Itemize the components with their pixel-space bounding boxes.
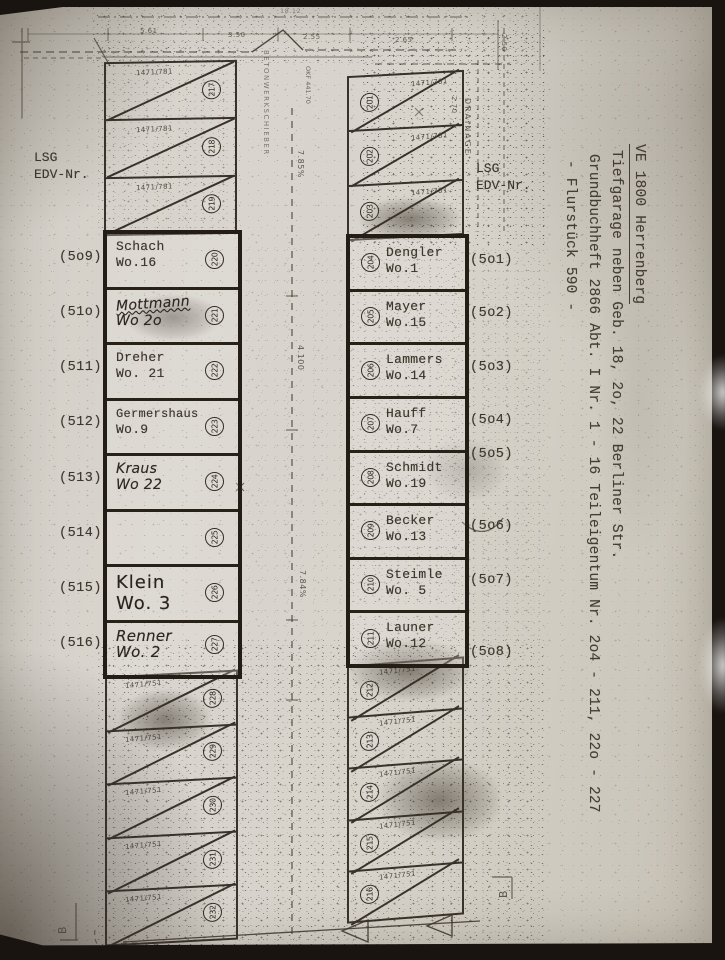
- parcel-number: 1471/751: [125, 786, 162, 797]
- stall-number-badge: 230: [203, 795, 222, 815]
- owner-name: Germershaus: [116, 406, 199, 422]
- stall-number: 230: [208, 798, 217, 812]
- stall-number: 219: [207, 197, 216, 211]
- note-line-2: Tiefgarage neben Geb. 18, 2o, 22 Berline…: [604, 138, 627, 818]
- owner-name: Lammers: [386, 352, 443, 368]
- photo-edge-bottom: [0, 943, 725, 960]
- owner-name: Steimle: [386, 567, 443, 583]
- parking-stall: 1471/781 203: [349, 179, 462, 239]
- stall-number-badge: 203: [360, 201, 379, 221]
- apartment-ref: Wo. 21: [116, 366, 165, 382]
- apartment-ref: Wo.15: [386, 315, 427, 331]
- stall-number-badge: 225: [205, 528, 224, 547]
- stall-number: 212: [365, 683, 374, 697]
- apartment-ref: Wo. 5: [386, 583, 443, 599]
- apartment-ref: Wo.1: [386, 261, 443, 277]
- parking-stall: 1471/751 228: [107, 672, 236, 730]
- dim-350: 3.50: [228, 31, 246, 39]
- drainage-label: DRAINAGE: [463, 98, 472, 190]
- stall-number-badge: 227: [205, 635, 224, 654]
- stall-number-badge: 206: [361, 361, 380, 380]
- owner-name: Hauff: [386, 406, 427, 422]
- stall-number: 210: [366, 578, 375, 592]
- edv-number: (514): [59, 526, 102, 541]
- stall-number: 229: [208, 745, 217, 759]
- parking-stall: 1471/781 218: [106, 117, 235, 177]
- stall-number: 208: [366, 470, 375, 484]
- apartment-ref: Wo.19: [386, 476, 443, 492]
- parcel-number: 1471/751: [125, 679, 162, 690]
- note-line-3: Grundbuchheft 2866 Abt. I Nr. 1 - 16 Tei…: [581, 138, 604, 818]
- ramp-material-label: BETONWERKSCHIEBER: [262, 50, 270, 195]
- edv-number: (512): [59, 415, 102, 430]
- apartment-ref: Wo.13: [386, 529, 435, 545]
- header-edv: EDV-Nr.: [34, 167, 89, 182]
- apartment-ref: Wo.14: [386, 368, 443, 384]
- edv-number: (5o1): [470, 253, 513, 268]
- section-marker-b-right: B: [497, 891, 511, 898]
- stall-number: 214: [365, 785, 374, 799]
- parking-stall: 1471/781 202: [349, 124, 462, 184]
- owner-name: Kraus: [116, 461, 162, 477]
- parcel-number: 1471/751: [379, 767, 416, 779]
- parking-stall: 211 LaunerWo.12: [350, 610, 465, 664]
- stall-number: 211: [366, 631, 375, 645]
- owner-name: Mayer: [386, 299, 427, 315]
- stall-number-badge: 219: [202, 194, 221, 213]
- edv-column-right: (5o1) (5o2) (5o3) (5o4) (5o5) (5o6) (5o7…: [470, 234, 534, 660]
- left-main-stalls: SchachWo.16 220 MottmannWo 2o 221 Dreher…: [103, 230, 242, 679]
- owner-name: Becker: [386, 513, 435, 529]
- stall-number-badge: 215: [360, 833, 379, 853]
- owner-name: Mottmann: [116, 293, 191, 314]
- stall-number: 202: [365, 150, 374, 164]
- stall-number-badge: 231: [203, 849, 222, 869]
- parcel-number: 1471/751: [379, 716, 416, 728]
- parking-stall: MottmannWo 2o 221: [107, 287, 238, 343]
- plan-title: VE 1800 Herrenberg: [629, 144, 647, 304]
- title-block-note: VE 1800 Herrenberg Tiefgarage neben Geb.…: [558, 138, 650, 818]
- apartment-ref: Wo. 2: [116, 644, 172, 660]
- parking-stall: 1471/751 231: [107, 830, 236, 890]
- owner-name: Dreher: [116, 350, 165, 366]
- owner-name: Schach: [116, 239, 165, 255]
- stall-number-badge: 229: [203, 742, 222, 762]
- parcel-number: 1471/751: [125, 840, 162, 851]
- parcel-number: 1471/751: [379, 869, 416, 881]
- stall-number: 205: [366, 310, 375, 324]
- edv-number: (5o8): [470, 645, 513, 660]
- stall-number: 213: [365, 734, 374, 748]
- dim-255: 2.55: [303, 33, 321, 41]
- parking-stall: 208 SchmidtWo.19: [350, 450, 465, 504]
- parking-stall: 1471/751 214: [349, 759, 462, 819]
- stall-number: 227: [210, 637, 219, 651]
- stall-number: 232: [208, 905, 217, 919]
- okf-value: 441.70: [304, 81, 312, 104]
- parking-stall: 209 BeckerWo.13: [350, 503, 465, 557]
- parking-stall: 207 HauffWo.7: [350, 396, 465, 450]
- stall-number-badge: 223: [205, 417, 224, 436]
- stall-number-badge: 221: [205, 306, 224, 325]
- parking-stall: 1471/751 230: [107, 777, 236, 837]
- corridor-width-dim: 4.100: [296, 345, 305, 385]
- stall-number-badge: 210: [361, 575, 380, 594]
- owner-name: Dengler: [386, 245, 443, 261]
- stall-number: 217: [207, 82, 216, 96]
- note-line-1: VE 1800 Herrenberg: [627, 138, 650, 818]
- left-bottom-stalls: 1471/751 228 1471/751 229 1471/751 230 1…: [105, 670, 238, 947]
- apartment-ref: Wo.9: [116, 422, 199, 438]
- stall-number: 215: [365, 836, 374, 850]
- parking-stall: 206 LammersWo.14: [350, 342, 465, 396]
- right-top-stalls: 1471/781 201 1471/781 202 1471/781 203: [347, 70, 464, 241]
- edv-number: (5o6): [470, 519, 513, 534]
- apartment-ref: Wo. 3: [116, 593, 171, 614]
- stall-number-badge: 216: [360, 884, 379, 904]
- stall-number-badge: 218: [202, 137, 221, 156]
- stall-number: 222: [210, 364, 219, 378]
- stall-number: 216: [365, 887, 374, 901]
- right-main-stalls: 204 DenglerWo.1 205 MayerWo.15 206 Lamme…: [346, 234, 469, 668]
- stall-number-badge: 202: [360, 147, 379, 167]
- right-bottom-stalls: 1471/751 212 1471/751 213 1471/751 214 1…: [347, 656, 464, 923]
- section-marker-b-left: B: [56, 927, 70, 934]
- parking-stall: 1471/781 219: [106, 175, 235, 235]
- slope-annotation-top: 7.85%: [296, 150, 305, 190]
- left-top-stalls: 1471/781 217 1471/781 218 1471/781 219: [104, 60, 237, 236]
- stall-number-badge: 222: [205, 361, 224, 380]
- edv-number: (5o5): [470, 447, 513, 462]
- header-edv: EDV-Nr.: [476, 178, 531, 193]
- edv-number: (5o4): [470, 413, 513, 428]
- stall-number-badge: 224: [205, 472, 224, 491]
- stall-number: 228: [208, 691, 217, 705]
- parcel-number: 1471/751: [379, 818, 416, 830]
- edv-number: (5o2): [470, 306, 513, 321]
- stall-number-badge: 204: [361, 253, 380, 272]
- parking-stall: 1471/751 215: [349, 810, 462, 870]
- stall-number: 226: [210, 586, 219, 600]
- parking-stall: DreherWo. 21 222: [107, 342, 238, 398]
- stall-number: 220: [210, 253, 219, 267]
- elevation-label: OKF 441.70: [304, 66, 312, 118]
- parking-stall: RennerWo. 2 227: [107, 620, 238, 676]
- stall-number: 218: [207, 140, 216, 154]
- note-line-4: - Flurstück 590 -: [558, 138, 581, 818]
- parking-stall: KrausWo 22 224: [107, 453, 238, 509]
- stall-number: 225: [210, 530, 219, 544]
- stall-number: 201: [365, 95, 374, 109]
- parking-stall: 1471/781 217: [106, 62, 235, 120]
- parking-stall: 1471/751 216: [349, 861, 462, 921]
- parking-stall: SchachWo.16 220: [107, 234, 238, 287]
- parking-stall: GermershausWo.9 223: [107, 398, 238, 454]
- stall-number-badge: 232: [203, 903, 222, 923]
- stall-number-badge: 205: [361, 307, 380, 326]
- parking-stall: 1471/751 232: [107, 884, 236, 944]
- edv-number: (515): [59, 581, 102, 596]
- okf-abbrev: OKF: [304, 66, 312, 79]
- edv-header-left: LSGEDV-Nr.: [34, 149, 89, 183]
- stall-number: 223: [210, 419, 219, 433]
- apartment-ref: Wo 22: [116, 477, 162, 493]
- parcel-number: 1471/751: [125, 893, 162, 904]
- parking-stall-empty: 225: [107, 509, 238, 565]
- stall-number: 231: [208, 852, 217, 866]
- stall-number-badge: 226: [205, 583, 224, 602]
- stall-number-badge: 209: [361, 521, 380, 540]
- apartment-ref: Wo.12: [386, 636, 435, 652]
- edv-column-left: (5o9) (51o) (511) (512) (513) (514) (515…: [30, 230, 102, 671]
- parking-stall: 1471/751 213: [349, 708, 462, 768]
- edv-number: (51o): [59, 305, 102, 320]
- stall-number-badge: 228: [203, 688, 222, 708]
- header-lsg: LSG: [34, 150, 57, 165]
- stall-number: 221: [210, 308, 219, 322]
- parking-stall: 1471/751 229: [107, 723, 236, 783]
- stall-number-badge: 213: [360, 731, 379, 751]
- owner-name: Klein: [116, 572, 171, 593]
- slope-annotation-bottom: 7.84%: [298, 570, 307, 610]
- owner-name: Schmidt: [386, 460, 443, 476]
- stall-number: 204: [366, 256, 375, 270]
- stall-number-badge: 220: [205, 250, 224, 269]
- edv-number: (516): [59, 636, 102, 651]
- owner-name: Launer: [386, 620, 435, 636]
- dim-1812: 18.12: [280, 7, 301, 15]
- stall-number-badge: 217: [202, 80, 221, 99]
- stall-number-badge: 212: [360, 680, 379, 700]
- stall-number: 206: [366, 363, 375, 377]
- stall-number-badge: 201: [360, 93, 379, 113]
- edv-number: (511): [59, 360, 102, 375]
- stall-number: 209: [366, 524, 375, 538]
- stall-number: 203: [365, 204, 374, 218]
- apartment-ref: Wo.16: [116, 255, 165, 271]
- parcel-number: 1471/781: [136, 182, 173, 192]
- apartment-ref: Wo 2o: [116, 313, 190, 329]
- parking-stall: 1471/781 201: [349, 72, 462, 130]
- photo-edge-right: [712, 0, 725, 960]
- parcel-number: 1471/751: [125, 732, 162, 743]
- stall-number: 207: [366, 417, 375, 431]
- stall-number-badge: 208: [361, 468, 380, 487]
- dim-250: 2.50: [500, 34, 508, 64]
- edv-number: (513): [59, 471, 102, 486]
- edv-number: (5o3): [470, 360, 513, 375]
- dim-265: 2.65: [395, 36, 413, 44]
- parcel-number: 1471/781: [136, 67, 173, 77]
- stall-number-badge: 211: [361, 629, 380, 648]
- parking-stall: 210 SteimleWo. 5: [350, 557, 465, 611]
- apartment-ref: Wo.7: [386, 422, 427, 438]
- edv-number: (5o9): [59, 250, 102, 265]
- parking-stall: 204 DenglerWo.1: [350, 238, 465, 289]
- stall-number-badge: 207: [361, 414, 380, 433]
- stall-number-badge: 214: [360, 782, 379, 802]
- parking-stall: 205 MayerWo.15: [350, 289, 465, 343]
- edv-header-right: LSGEDV-Nr.: [476, 160, 531, 194]
- header-lsg: LSG: [476, 161, 499, 176]
- dim-561: 5.61: [140, 27, 158, 35]
- stall-number: 224: [210, 475, 219, 489]
- owner-name: Renner: [116, 628, 172, 644]
- edv-number: (5o7): [470, 573, 513, 588]
- parcel-number: 1471/781: [136, 125, 173, 135]
- parking-stall: KleinWo. 3 226: [107, 564, 238, 620]
